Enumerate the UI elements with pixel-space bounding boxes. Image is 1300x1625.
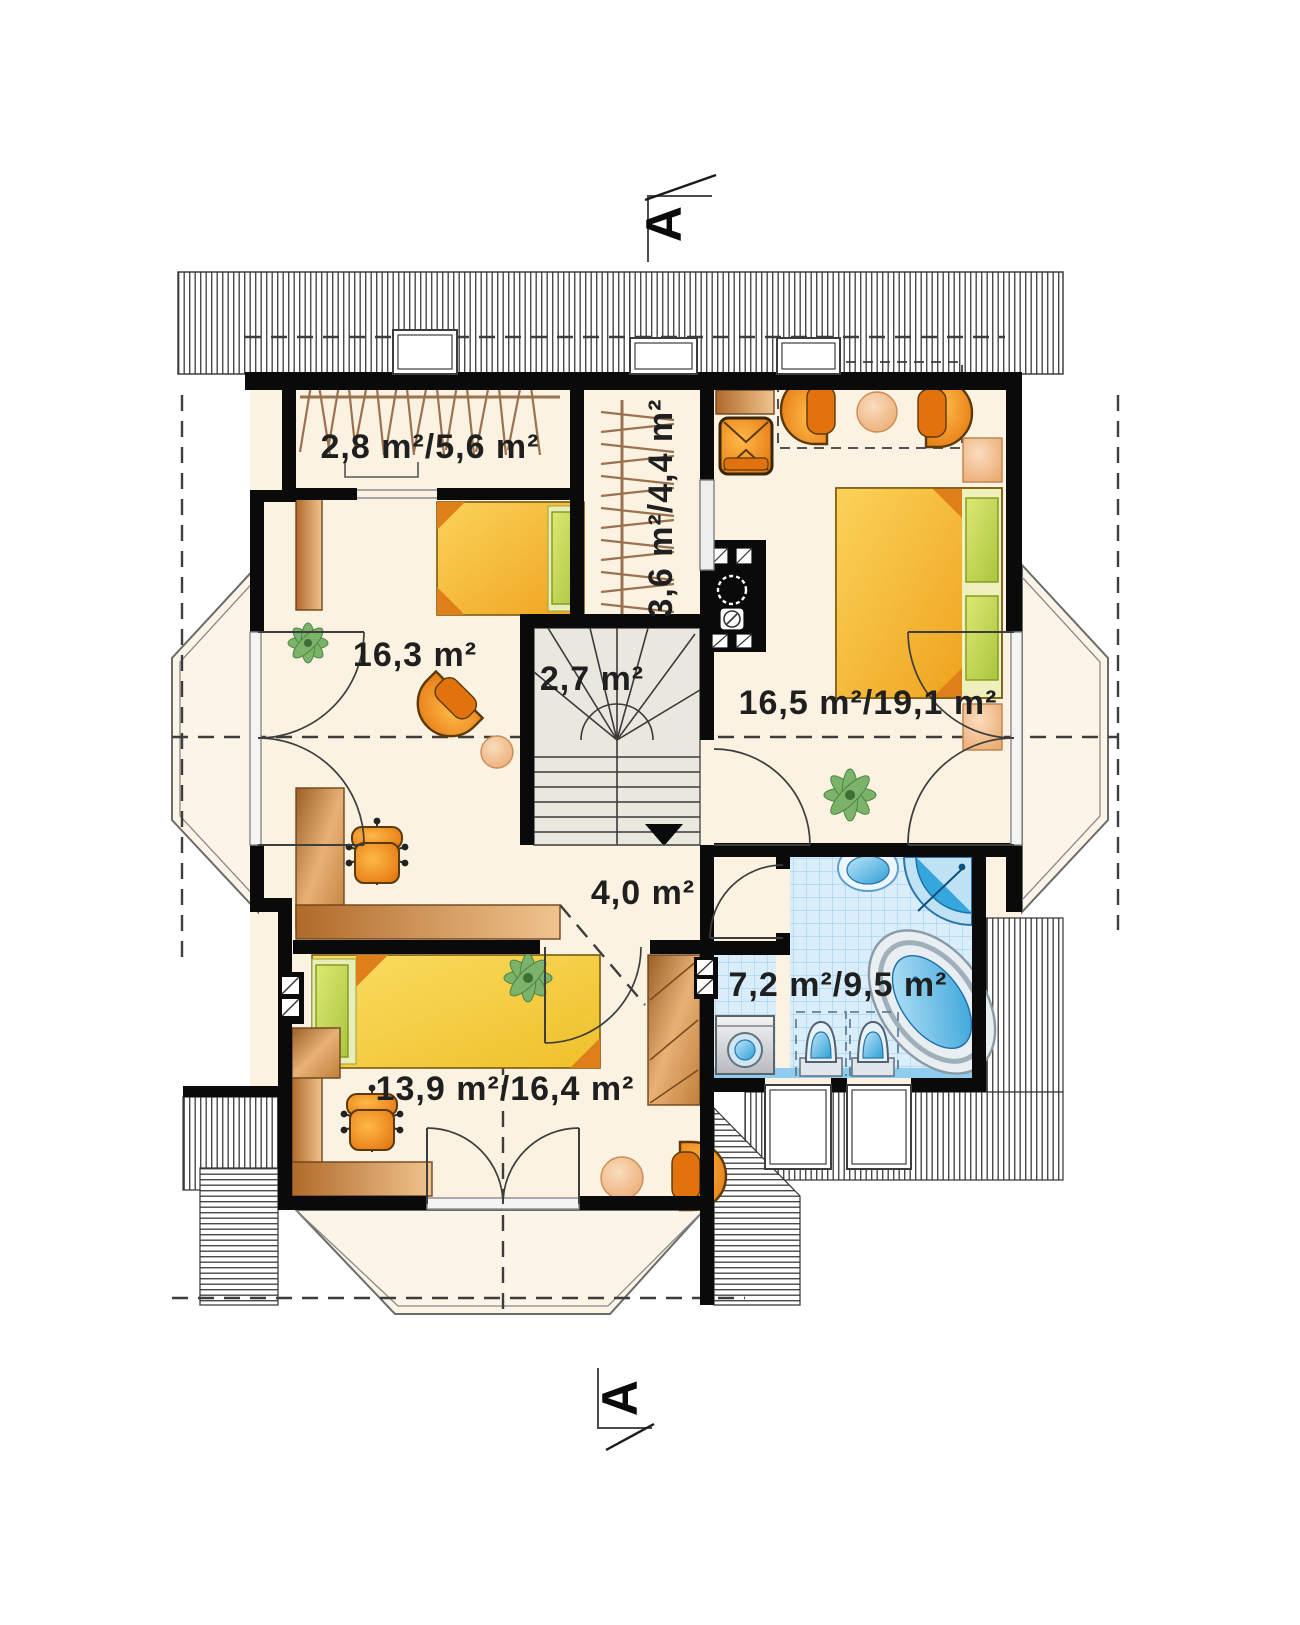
sliding-door [700,480,714,570]
balcony-right [1022,565,1108,912]
wall-stairs-west [520,628,534,845]
roof-slope-left [200,1168,278,1305]
shelf [296,490,322,610]
roof-edge [183,1086,278,1097]
vent-block [694,957,718,999]
floor-plan-svg: 2,8 m²/5,6 m² 3,6 m²/4,4 m² 16,3 m² 2,7 … [0,0,1300,1625]
area-label-stairs: 2,7 m² [540,660,644,698]
double-bed [836,488,1002,698]
single-bed [437,502,584,615]
section-letter-bottom: A [592,1380,648,1416]
plant [288,623,328,663]
area-label-hall: 4,0 m² [591,874,695,912]
wall-living-west-upper [250,490,264,632]
wall-bathroom-east [972,857,986,1092]
area-label-wardrobe: 2,8 m²/5,6 m² [321,428,540,466]
area-label-bedroom: 16,5 m²/19,1 m² [739,684,998,722]
wall-child-north [293,940,540,954]
balcony-left [172,565,258,912]
wall-wardrobe-west [282,372,296,502]
area-label-living: 16,3 m² [353,636,477,674]
wall-hall-south [700,941,790,955]
wall-bedroom-east [1006,390,1022,568]
washing-machine [716,1016,774,1074]
side-table [481,736,513,768]
wall-closet-west [570,372,584,628]
single-bed [312,955,600,1068]
pillow [966,498,998,582]
section-marker-top: A [636,175,716,262]
wall-child-south-west [292,1196,427,1210]
floor-plan-page: 2,8 m²/5,6 m² 3,6 m²/4,4 m² 16,3 m² 2,7 … [0,0,1300,1625]
area-label-bathroom: 7,2 m²/9,5 m² [729,966,948,1004]
wall-stairs-north [520,614,714,628]
section-letter-top: A [636,206,692,242]
wall-closet-east-upper [700,372,714,480]
wall-child-south-east [579,1196,704,1210]
coffee-table [857,392,897,432]
plant [824,769,876,821]
nightstand [963,438,1002,482]
roof-band-right [986,918,1063,1092]
pillow [966,596,998,680]
wall-child-west [278,898,292,1210]
wall-bathroom-south [700,1078,765,1092]
skylight-window [847,1085,911,1169]
stool-chair [720,418,772,474]
skylight-window [765,1085,831,1169]
wardrobe-cabinet [648,955,700,1105]
area-label-closet: 3,6 m²/4,4 m² [642,399,680,618]
area-label-child-room: 13,9 m²/16,4 m² [376,1070,635,1108]
dresser [716,390,774,414]
roof-band-top [178,272,1063,374]
skylight-window [393,330,457,374]
side-table [601,1157,643,1199]
wall-child-east [700,955,714,1305]
vent-block [278,972,304,1024]
section-marker-bottom: A [592,1368,654,1450]
